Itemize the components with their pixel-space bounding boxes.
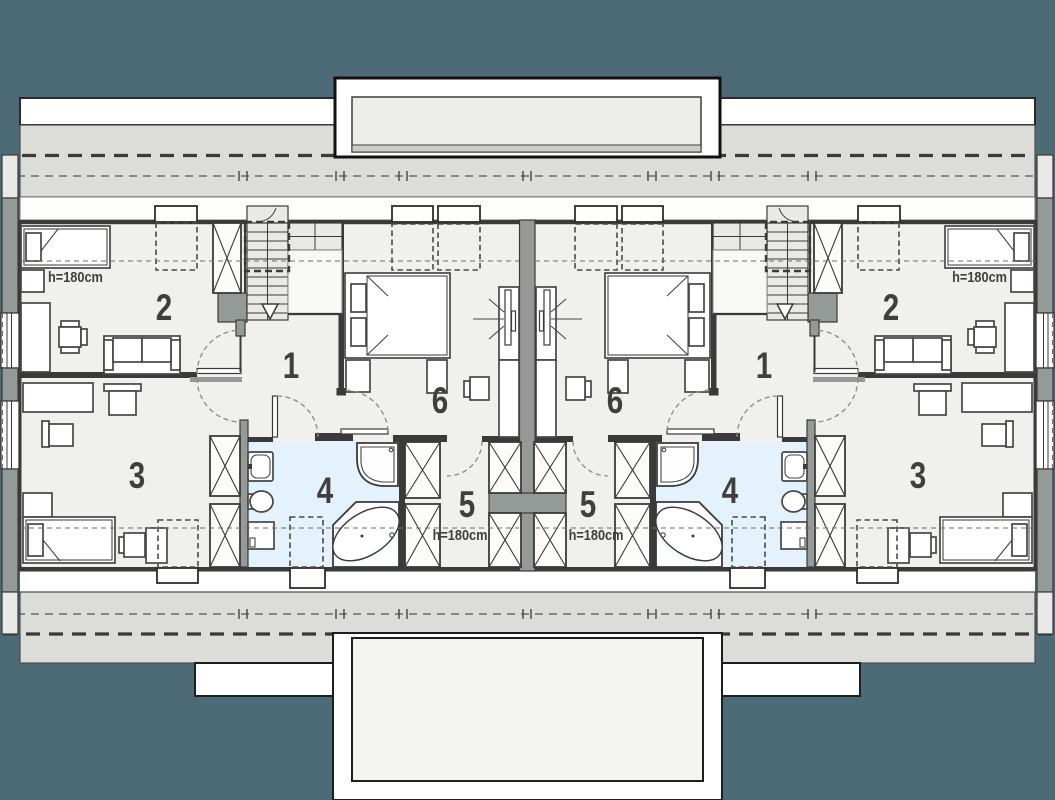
room-label-left-1: 1 [283, 346, 299, 387]
gable-window [1, 401, 19, 469]
bathroom-left-wall [240, 420, 248, 567]
room-label-left-5: 5 [459, 485, 475, 526]
room-label-right-6: 6 [607, 381, 623, 422]
terrace-inner [352, 638, 703, 781]
height-note-right-top: h=180cm [952, 268, 1007, 285]
tv-screen [505, 290, 511, 345]
floor-plan-page: 1 2 3 4 5 6 1 2 3 4 5 6 h=180cm h=180cm … [0, 0, 1055, 800]
wardrobe [213, 223, 241, 293]
stairwell-bump [247, 206, 288, 223]
room-label-right-4: 4 [722, 471, 739, 512]
chair [470, 377, 489, 400]
washer [248, 522, 274, 549]
tub-drain [361, 535, 364, 538]
dormer-window [438, 206, 480, 222]
dormer-window [157, 568, 198, 583]
gable-panel [2, 198, 18, 313]
room-label-right-3: 3 [910, 456, 926, 497]
pillow [351, 284, 366, 312]
chair-arm [61, 321, 79, 327]
staircase [245, 222, 342, 320]
door-leaf-bathroom [273, 396, 278, 437]
chair [124, 533, 145, 557]
door-leaf-room2 [197, 369, 241, 374]
height-note-left-top: h=180cm [48, 268, 103, 285]
bathroom-top-wall [248, 437, 273, 442]
chair-arm [61, 347, 79, 353]
room-label-left-3: 3 [129, 456, 145, 497]
chair [59, 327, 81, 347]
room-label-left-2: 2 [156, 288, 172, 329]
chimney-block [489, 493, 566, 513]
gable-window [1, 313, 19, 368]
height-note-left-bottom: h=180cm [433, 526, 488, 543]
dormer-window [392, 206, 433, 222]
room-label-right-5: 5 [580, 485, 596, 526]
gable-roof-edge [2, 155, 18, 198]
chair [109, 391, 136, 415]
nightstand [346, 360, 370, 392]
skylight-sill [352, 145, 701, 152]
stair-wall-block [218, 293, 247, 322]
gable-eave-piece [2, 592, 18, 634]
pillow [28, 524, 43, 556]
wardrobe [405, 442, 440, 567]
chair [49, 424, 73, 446]
desk [146, 528, 167, 563]
room-label-right-1: 1 [756, 346, 772, 387]
desk [499, 360, 519, 437]
skylight-inner [352, 97, 701, 152]
toilet [250, 491, 273, 512]
faucet [248, 464, 252, 469]
wall-end-post [337, 388, 347, 396]
room-label-left-6: 6 [432, 381, 448, 422]
desk [21, 303, 50, 372]
room5-top-wall [393, 435, 447, 442]
room-label-right-2: 2 [883, 288, 899, 329]
door-leaf-room6 [341, 429, 388, 434]
nightstand [21, 270, 44, 292]
chair-back [81, 329, 87, 345]
sliding-door-panel [190, 377, 242, 382]
sofa [104, 336, 180, 374]
gable-panel [2, 469, 18, 592]
nightstand [23, 493, 52, 517]
gable-panel [2, 368, 18, 401]
door-post [236, 320, 245, 336]
height-note-right-bottom: h=180cm [569, 526, 624, 543]
attic-floor-plan: 1 2 3 4 5 6 1 2 3 4 5 6 h=180cm h=180cm … [0, 0, 1055, 800]
chair-back [42, 421, 49, 447]
pillow [351, 318, 366, 346]
chair-back [464, 381, 470, 397]
dormer-window [290, 568, 325, 588]
lower-roof-wing [195, 663, 333, 696]
room-label-left-4: 4 [317, 471, 334, 512]
terrace [333, 633, 722, 800]
dormer-window [155, 206, 197, 222]
pillow [26, 233, 41, 261]
sideboard [23, 383, 93, 412]
chair-back [104, 384, 141, 391]
